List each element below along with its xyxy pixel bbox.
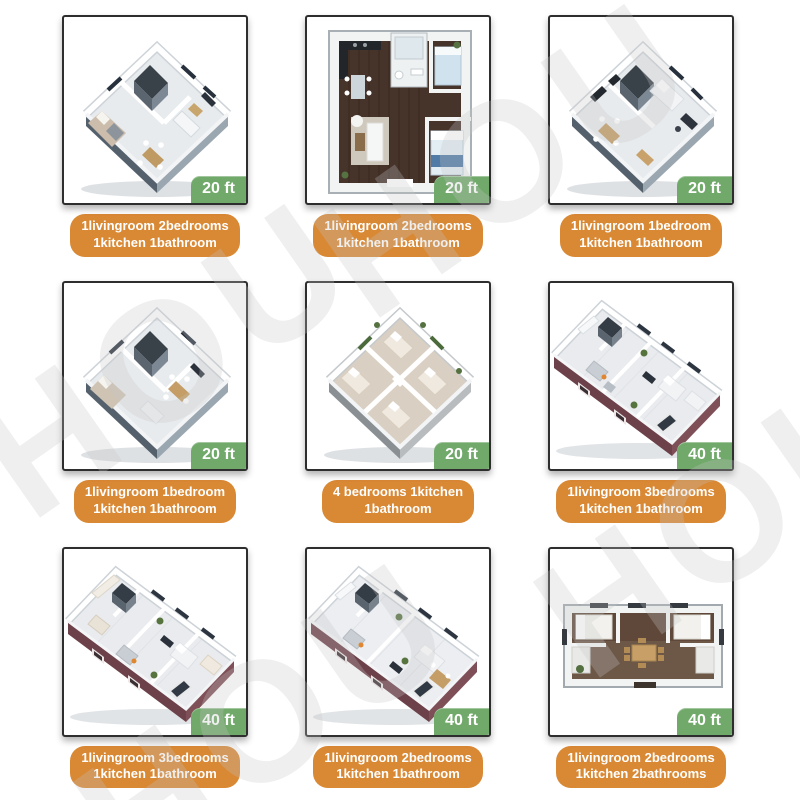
floorplan-card-3[interactable]: 20 ft — [548, 15, 734, 205]
floorplan-card-1[interactable]: 20 ft — [62, 15, 248, 205]
caption-line-2: 1kitchen 1bathroom — [81, 235, 228, 252]
plan-caption: 1livingroom 1bedroom 1kitchen 1bathroom — [560, 214, 722, 257]
caption-line-1: 1livingroom 3bedrooms — [567, 484, 714, 501]
floorplan-card-8[interactable]: 40 ft — [305, 547, 491, 737]
catalog-cell: 20 ft 1livingroom 1bedroom 1kitchen 1bat… — [62, 281, 248, 523]
floorplan-image-iso-long — [550, 283, 732, 469]
caption-line-1: 1livingroom 1bedroom — [85, 484, 225, 501]
catalog-cell: 40 ft 1livingroom 3bedrooms 1kitchen 1ba… — [62, 547, 248, 789]
caption-line-2: 1bathroom — [333, 501, 463, 518]
caption-line-2: 1kitchen 1bathroom — [567, 501, 714, 518]
floorplan-card-2[interactable]: 20 ft — [305, 15, 491, 205]
caption-line-2: 1kitchen 1bathroom — [85, 501, 225, 518]
plan-caption: 1livingroom 2bedrooms 1kitchen 1bathroom — [313, 214, 482, 257]
caption-line-1: 1livingroom 3bedrooms — [81, 750, 228, 767]
caption-line-2: 1kitchen 2bathrooms — [567, 766, 714, 783]
catalog-cell: 20 ft 4 bedrooms 1kitchen 1bathroom — [305, 281, 491, 523]
floorplan-card-5[interactable]: 20 ft — [305, 281, 491, 471]
caption-line-1: 1livingroom 2bedrooms — [81, 218, 228, 235]
catalog-cell: 40 ft 1livingroom 2bedrooms 1kitchen 2ba… — [548, 547, 734, 789]
plan-caption: 1livingroom 1bedroom 1kitchen 1bathroom — [74, 480, 236, 523]
floorplan-image-iso-square — [64, 283, 246, 469]
plan-caption: 1livingroom 2bedrooms 1kitchen 1bathroom — [313, 746, 482, 789]
size-badge: 40 ft — [191, 708, 246, 735]
size-badge: 20 ft — [434, 442, 489, 469]
caption-line-2: 1kitchen 1bathroom — [324, 766, 471, 783]
floorplan-card-6[interactable]: 40 ft — [548, 281, 734, 471]
caption-line-1: 1livingroom 2bedrooms — [567, 750, 714, 767]
floorplan-catalog: 20 ft 1livingroom 2bedrooms 1kitchen 1ba… — [0, 0, 800, 800]
plan-caption: 1livingroom 2bedrooms 1kitchen 2bathroom… — [556, 746, 725, 789]
plan-caption: 1livingroom 2bedrooms 1kitchen 1bathroom — [70, 214, 239, 257]
floorplan-card-9[interactable]: 40 ft — [548, 547, 734, 737]
size-badge: 20 ft — [677, 176, 732, 203]
floorplan-card-7[interactable]: 40 ft — [62, 547, 248, 737]
caption-line-2: 1kitchen 1bathroom — [571, 235, 711, 252]
catalog-cell: 20 ft 1livingroom 2bedrooms 1kitchen 1ba… — [305, 15, 491, 257]
caption-line-2: 1kitchen 1bathroom — [81, 766, 228, 783]
size-badge: 20 ft — [191, 176, 246, 203]
floorplan-image-iso-long — [307, 549, 489, 735]
size-badge: 40 ft — [677, 442, 732, 469]
catalog-grid: 20 ft 1livingroom 2bedrooms 1kitchen 1ba… — [62, 15, 734, 788]
floorplan-card-4[interactable]: 20 ft — [62, 281, 248, 471]
plan-caption: 1livingroom 3bedrooms 1kitchen 1bathroom — [556, 480, 725, 523]
size-badge: 20 ft — [191, 442, 246, 469]
catalog-cell: 20 ft 1livingroom 2bedrooms 1kitchen 1ba… — [62, 15, 248, 257]
size-badge: 40 ft — [434, 708, 489, 735]
caption-line-1: 4 bedrooms 1kitchen — [333, 484, 463, 501]
caption-line-1: 1livingroom 1bedroom — [571, 218, 711, 235]
size-badge: 20 ft — [434, 176, 489, 203]
caption-line-2: 1kitchen 1bathroom — [324, 235, 471, 252]
catalog-cell: 20 ft 1livingroom 1bedroom 1kitchen 1bat… — [548, 15, 734, 257]
plan-caption: 4 bedrooms 1kitchen 1bathroom — [322, 480, 474, 523]
catalog-cell: 40 ft 1livingroom 3bedrooms 1kitchen 1ba… — [548, 281, 734, 523]
catalog-cell: 40 ft 1livingroom 2bedrooms 1kitchen 1ba… — [305, 547, 491, 789]
floorplan-image-iso-long — [64, 549, 246, 735]
caption-line-1: 1livingroom 2bedrooms — [324, 750, 471, 767]
plan-caption: 1livingroom 3bedrooms 1kitchen 1bathroom — [70, 746, 239, 789]
size-badge: 40 ft — [677, 708, 732, 735]
floorplan-image-iso-4bed — [307, 283, 489, 469]
caption-line-1: 1livingroom 2bedrooms — [324, 218, 471, 235]
floorplan-image-topdown-long — [550, 549, 732, 735]
